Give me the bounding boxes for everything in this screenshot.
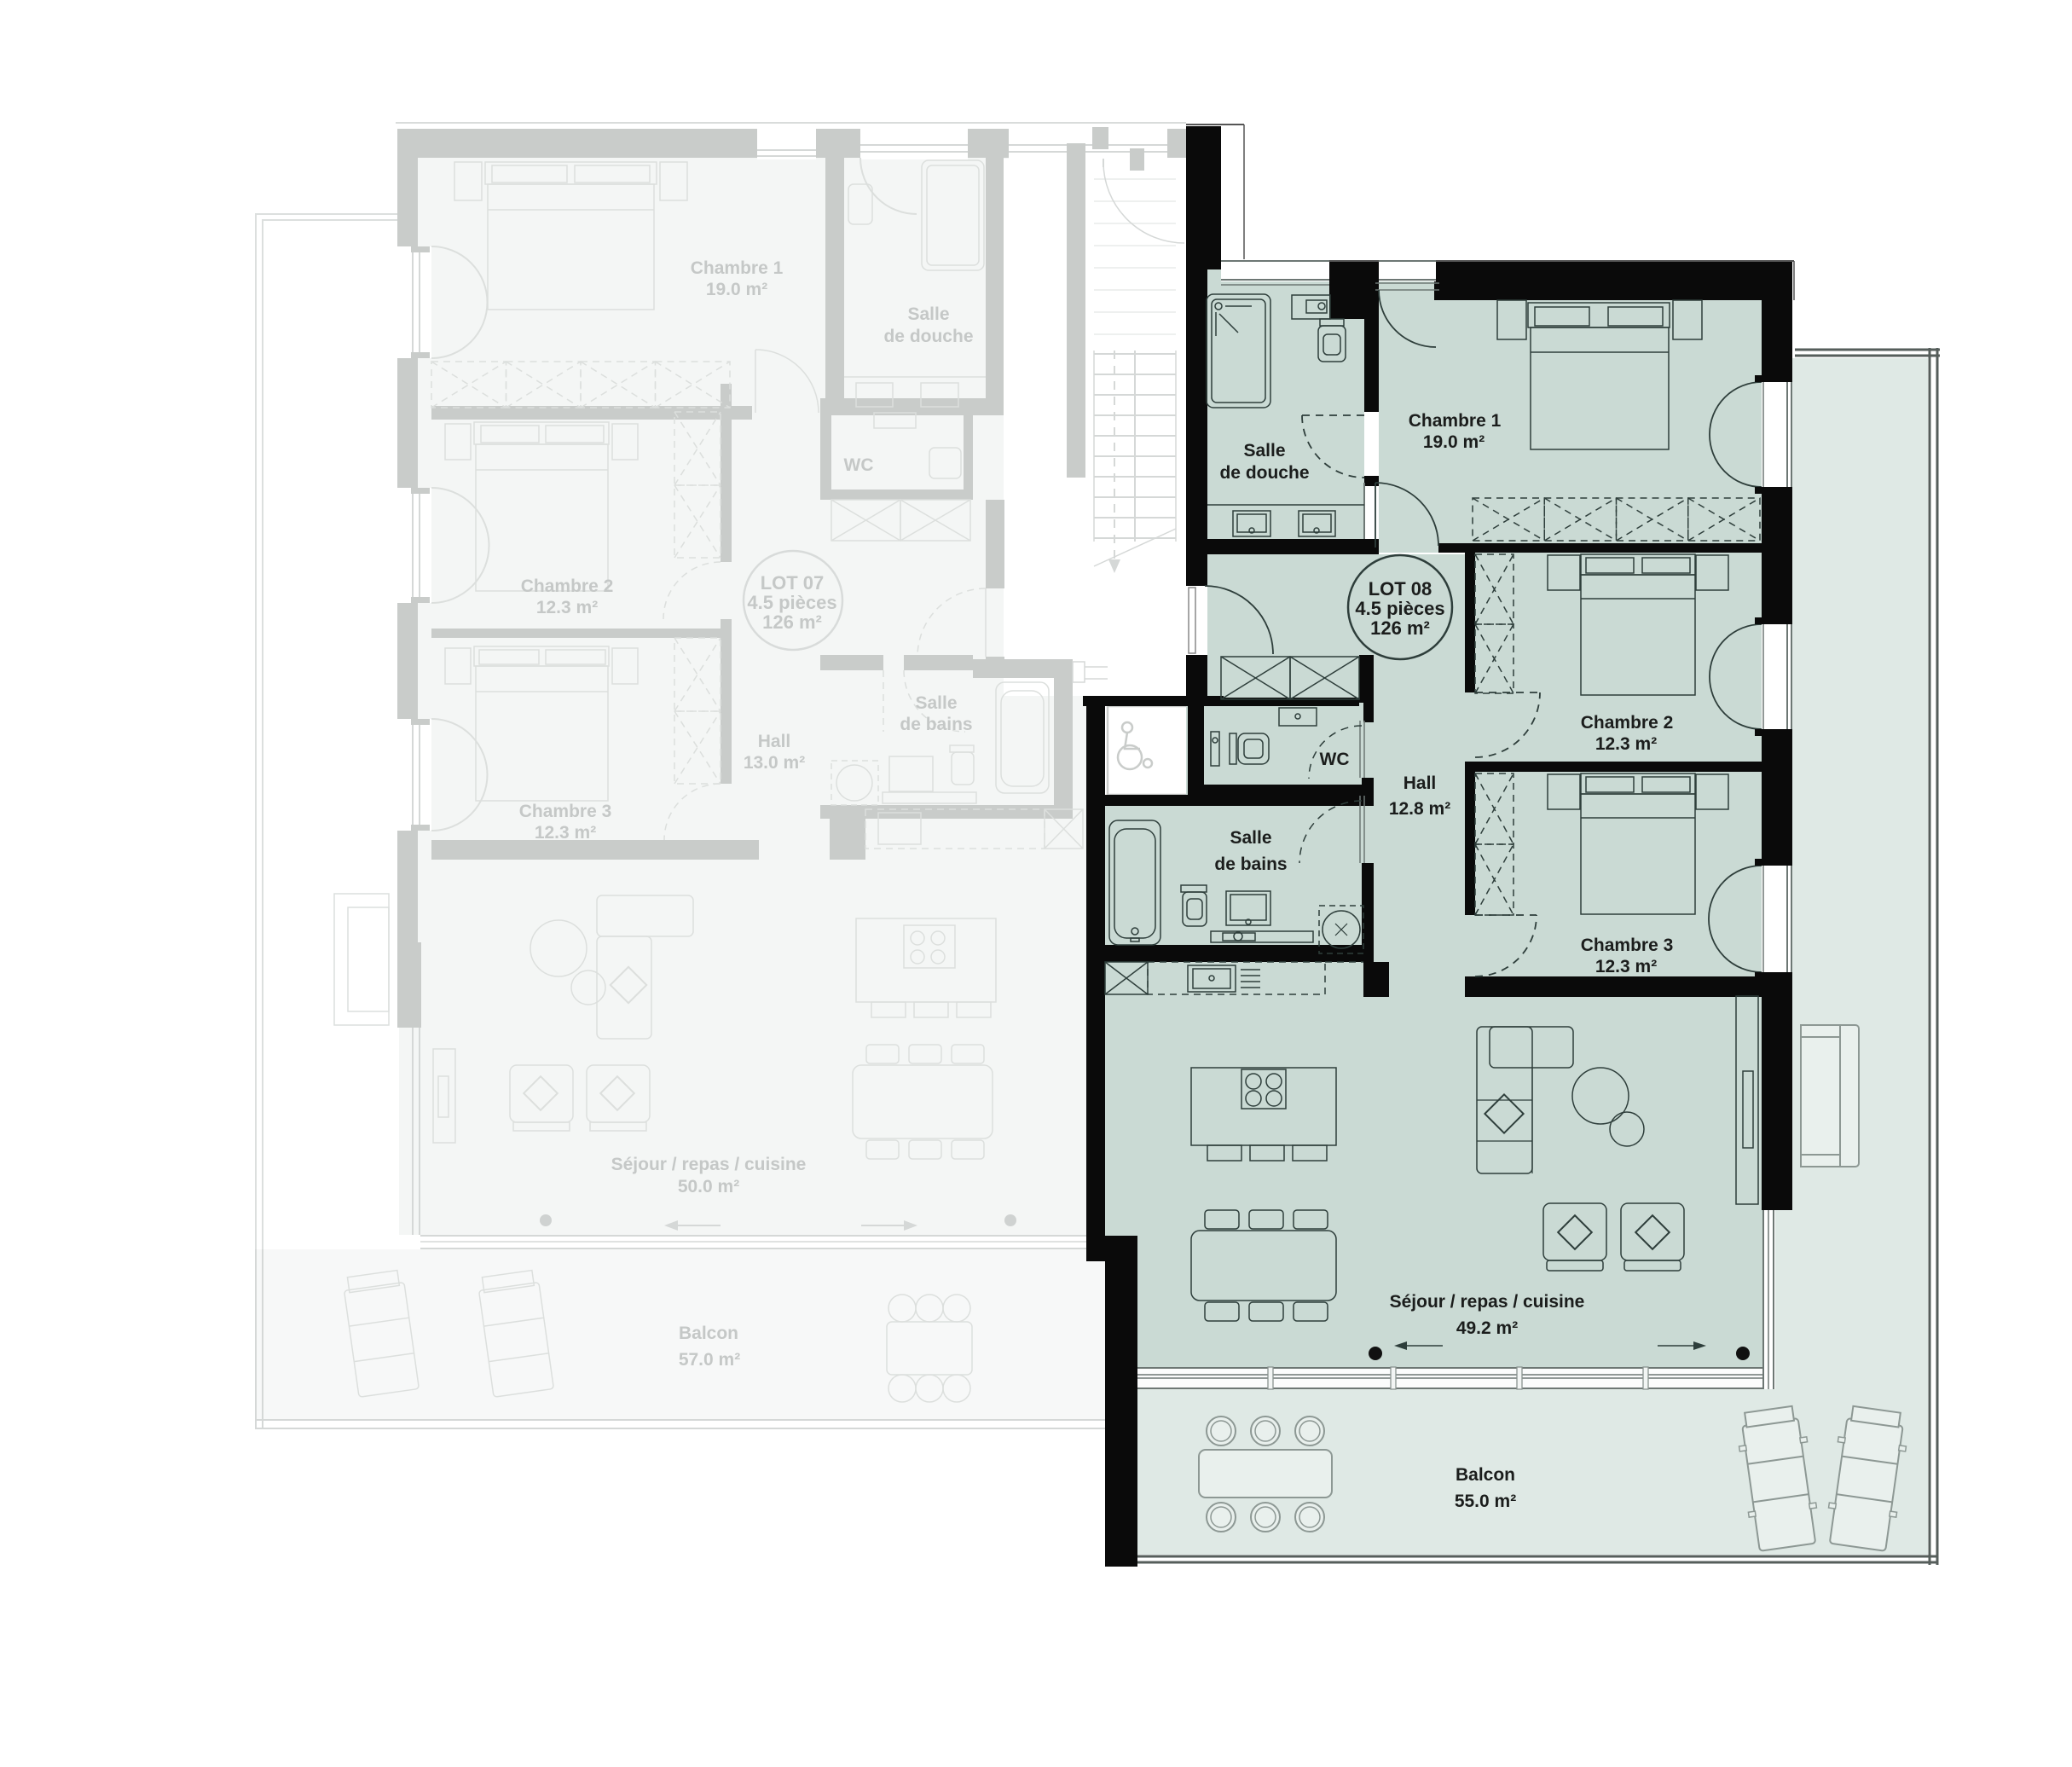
svg-text:Séjour / repas / cuisine: Séjour / repas / cuisine [1390,1292,1585,1312]
svg-text:Chambre 3: Chambre 3 [1581,936,1674,955]
svg-text:19.0 m²: 19.0 m² [1423,432,1485,452]
svg-text:4.5 pièces: 4.5 pièces [747,592,836,613]
svg-text:Hall: Hall [758,732,791,751]
svg-text:57.0 m²: 57.0 m² [679,1350,740,1370]
svg-text:49.2 m²: 49.2 m² [1456,1318,1518,1338]
svg-text:Balcon: Balcon [1456,1465,1515,1485]
svg-text:de douche: de douche [883,327,973,346]
svg-text:Hall: Hall [1404,773,1437,793]
svg-text:12.3 m²: 12.3 m² [535,823,596,843]
svg-text:12.3 m²: 12.3 m² [1595,734,1657,754]
svg-text:19.0 m²: 19.0 m² [706,280,767,299]
svg-text:WC: WC [844,455,874,475]
svg-text:Chambre 1: Chambre 1 [1409,411,1502,431]
svg-text:50.0 m²: 50.0 m² [678,1177,739,1196]
svg-text:12.3 m²: 12.3 m² [1595,957,1657,976]
svg-text:Salle: Salle [915,693,957,713]
svg-text:Salle: Salle [907,304,949,324]
svg-text:de bains: de bains [900,715,972,734]
svg-text:12.8 m²: 12.8 m² [1389,799,1450,819]
svg-text:Salle: Salle [1243,441,1285,461]
svg-text:LOT 07: LOT 07 [761,572,825,594]
svg-text:de bains: de bains [1214,855,1287,874]
svg-text:Salle: Salle [1230,828,1271,848]
svg-text:LOT 08: LOT 08 [1369,578,1432,600]
svg-text:12.3 m²: 12.3 m² [536,598,598,617]
svg-text:Chambre 1: Chambre 1 [691,258,784,278]
svg-text:WC: WC [1320,750,1350,769]
svg-text:126 m²: 126 m² [1370,617,1430,639]
svg-text:126 m²: 126 m² [762,611,822,633]
svg-text:55.0 m²: 55.0 m² [1455,1492,1516,1511]
svg-text:4.5 pièces: 4.5 pièces [1355,598,1444,619]
svg-text:Séjour / repas / cuisine: Séjour / repas / cuisine [611,1155,807,1174]
svg-text:Balcon: Balcon [679,1324,738,1343]
svg-text:de douche: de douche [1219,463,1309,483]
svg-text:Chambre 2: Chambre 2 [1581,713,1674,733]
svg-text:Chambre 2: Chambre 2 [521,576,614,596]
svg-text:13.0 m²: 13.0 m² [744,753,805,773]
svg-text:Chambre 3: Chambre 3 [519,802,612,821]
